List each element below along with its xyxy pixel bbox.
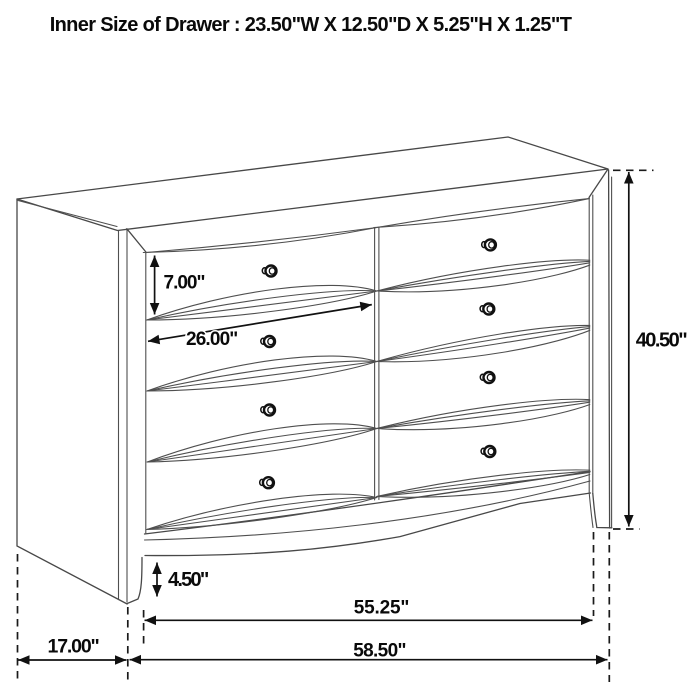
svg-text:17.00": 17.00" — [48, 635, 99, 657]
svg-text:4.50": 4.50" — [168, 569, 209, 591]
svg-text:26.00": 26.00" — [186, 329, 237, 350]
svg-text:7.00": 7.00" — [164, 272, 205, 293]
svg-text:58.50": 58.50" — [353, 641, 406, 662]
svg-text:55.25": 55.25" — [354, 597, 409, 618]
svg-text:Inner Size of Drawer : 23.50"W: Inner Size of Drawer : 23.50"W X 12.50"D… — [50, 14, 572, 36]
svg-text:40.50": 40.50" — [636, 329, 688, 351]
